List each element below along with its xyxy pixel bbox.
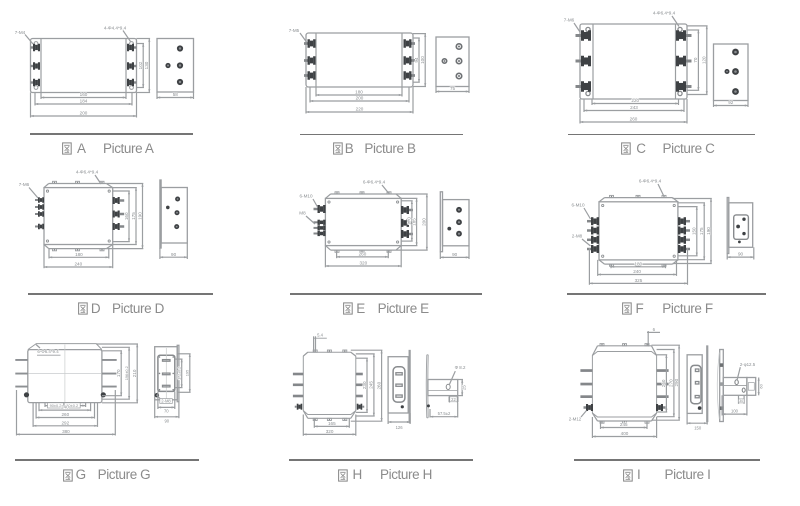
svg-text:195: 195 xyxy=(185,370,190,377)
svg-text:200: 200 xyxy=(422,218,427,226)
svg-text:220: 220 xyxy=(356,107,364,112)
svg-text:30: 30 xyxy=(739,399,743,403)
svg-text:75: 75 xyxy=(450,86,456,91)
svg-text:160: 160 xyxy=(80,92,88,97)
svg-text:6-M10: 6-M10 xyxy=(299,194,312,199)
svg-text:185: 185 xyxy=(411,218,416,226)
svg-text:7-M6: 7-M6 xyxy=(564,18,575,23)
svg-text:126: 126 xyxy=(396,425,404,430)
svg-text:7-M5: 7-M5 xyxy=(289,28,300,33)
svg-text:90: 90 xyxy=(738,252,744,257)
svg-text:70: 70 xyxy=(693,57,698,63)
svg-text:6-Φ6.4*9.4: 6-Φ6.4*9.4 xyxy=(363,180,386,185)
svg-text:M8: M8 xyxy=(299,211,306,216)
svg-text:Φ 8.2: Φ 8.2 xyxy=(455,365,466,370)
svg-text:4-Φ6.4*9.4: 4-Φ6.4*9.4 xyxy=(76,170,99,175)
svg-text:240: 240 xyxy=(75,262,83,267)
svg-text:58: 58 xyxy=(173,92,179,97)
svg-text:260: 260 xyxy=(376,381,381,389)
svg-text:2-M12: 2-M12 xyxy=(569,416,582,421)
svg-text:165: 165 xyxy=(328,421,336,426)
svg-text:94: 94 xyxy=(414,57,419,63)
svg-text:6: 6 xyxy=(653,327,656,332)
svg-text:260: 260 xyxy=(661,379,666,387)
svg-text:6-Φ6.4*9.4: 6-Φ6.4*9.4 xyxy=(37,349,59,354)
svg-text:243: 243 xyxy=(630,105,638,110)
svg-text:292: 292 xyxy=(61,420,69,425)
svg-text:172±0.2: 172±0.2 xyxy=(178,367,182,380)
svg-text:190: 190 xyxy=(137,212,142,220)
svg-text:260: 260 xyxy=(630,117,638,122)
svg-text:325: 325 xyxy=(635,278,643,283)
svg-text:175: 175 xyxy=(131,212,136,220)
svg-text:100: 100 xyxy=(731,409,739,414)
svg-text:90: 90 xyxy=(452,252,458,257)
svg-text:2-φ12.5: 2-φ12.5 xyxy=(740,362,756,367)
svg-text:400: 400 xyxy=(621,431,629,436)
svg-text:230: 230 xyxy=(362,381,367,389)
svg-text:320: 320 xyxy=(359,261,367,266)
svg-text:2-M8: 2-M8 xyxy=(161,399,171,404)
svg-text:245: 245 xyxy=(369,381,374,389)
svg-text:70: 70 xyxy=(164,409,169,414)
svg-text:22: 22 xyxy=(451,397,456,402)
svg-text:380: 380 xyxy=(62,429,70,434)
svg-text:190: 190 xyxy=(706,227,711,235)
svg-text:90: 90 xyxy=(171,252,177,257)
svg-text:196±0.2: 196±0.2 xyxy=(124,366,129,380)
svg-text:320: 320 xyxy=(326,429,334,434)
svg-text:180: 180 xyxy=(634,261,642,266)
svg-text:2-M8: 2-M8 xyxy=(572,234,583,239)
svg-text:6-Φ6.4*9.4: 6-Φ6.4*9.4 xyxy=(639,179,662,184)
svg-text:260: 260 xyxy=(359,252,367,257)
svg-text:180: 180 xyxy=(75,252,83,257)
svg-text:7-M4: 7-M4 xyxy=(15,30,26,35)
svg-text:175: 175 xyxy=(699,227,704,235)
svg-text:100: 100 xyxy=(420,56,425,64)
svg-text:210: 210 xyxy=(132,369,137,377)
svg-text:180: 180 xyxy=(355,90,363,95)
svg-text:4-Φ6.4*9.4: 4-Φ6.4*9.4 xyxy=(653,11,676,16)
svg-text:130: 130 xyxy=(144,61,149,69)
svg-text:57.5±2: 57.5±2 xyxy=(438,411,451,416)
svg-text:290: 290 xyxy=(674,378,679,386)
svg-text:150: 150 xyxy=(692,227,697,235)
svg-text:4-Φ4.4*9.4: 4-Φ4.4*9.4 xyxy=(104,26,127,31)
svg-text:150: 150 xyxy=(694,426,702,431)
svg-text:170: 170 xyxy=(116,369,121,377)
svg-text:240: 240 xyxy=(633,269,641,274)
svg-text:25: 25 xyxy=(462,385,467,391)
svg-text:90: 90 xyxy=(164,418,169,423)
svg-text:184: 184 xyxy=(80,99,88,104)
svg-text:245: 245 xyxy=(620,422,628,427)
svg-text:120: 120 xyxy=(702,56,707,64)
svg-text:92: 92 xyxy=(728,100,734,105)
svg-text:90±0.2: 90±0.2 xyxy=(50,403,62,408)
svg-text:200: 200 xyxy=(80,111,88,116)
svg-text:260: 260 xyxy=(61,412,69,417)
svg-text:240: 240 xyxy=(61,405,69,410)
svg-text:7-M6: 7-M6 xyxy=(19,182,30,187)
svg-text:220: 220 xyxy=(631,98,639,103)
svg-text:160: 160 xyxy=(124,212,129,220)
svg-text:6-M10: 6-M10 xyxy=(571,203,584,208)
svg-text:102: 102 xyxy=(138,61,143,69)
svg-text:200: 200 xyxy=(356,96,364,101)
svg-text:5.4: 5.4 xyxy=(317,332,323,337)
